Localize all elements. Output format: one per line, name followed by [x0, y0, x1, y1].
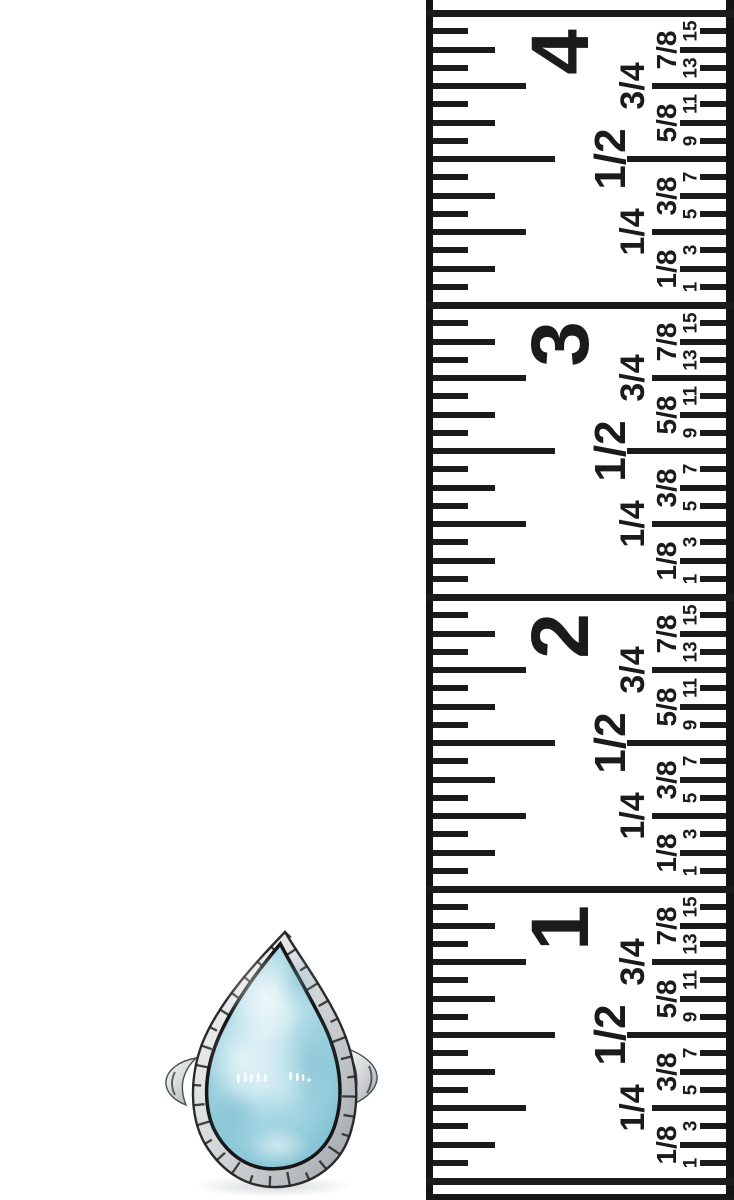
ruler-tick-left — [433, 193, 495, 199]
ruler-sixteenth-label: 11 — [682, 386, 701, 406]
ruler-sixteenth-label: 7 — [682, 756, 701, 767]
ruler-tick-left — [433, 466, 468, 472]
ruler-tick-right — [700, 941, 726, 947]
ruler-sixteenth-label: 5 — [682, 793, 701, 804]
ruler-tick-left — [433, 393, 468, 399]
ruler-inch-line — [426, 886, 734, 893]
ruler-tick-right — [700, 430, 726, 436]
ruler-tick-right — [680, 1142, 726, 1148]
ruler-tick-right — [700, 1050, 726, 1056]
ruler-eighth-label: 5/8 — [653, 396, 681, 435]
ruler-sixteenth-label: 15 — [682, 312, 701, 333]
ruler-tick-right — [680, 339, 726, 345]
ruler-tick-right — [700, 211, 726, 217]
ruler-sixteenth-label: 1 — [682, 282, 701, 293]
ruler-tick-left — [433, 375, 526, 381]
ruler-tick-right — [700, 1160, 726, 1166]
ruler-inch-numeral: 4 — [520, 31, 602, 75]
ruler-tick-left — [433, 211, 468, 217]
ruler-sixteenth-label: 15 — [682, 20, 701, 41]
ruler-tick-left — [433, 1105, 526, 1111]
ruler-quarter-label: 1/4 — [616, 500, 650, 547]
ruler-tick-left — [433, 777, 495, 783]
ruler-tick-right — [700, 174, 726, 180]
ruler-tick-right — [627, 448, 726, 454]
ruler-tick-right — [627, 1032, 726, 1038]
ruler-tick-left — [433, 339, 495, 345]
ruler-tick-left — [433, 649, 468, 655]
ruler-quarter-label: 3/4 — [616, 62, 650, 109]
ruler-inch-line — [426, 10, 734, 17]
ruler-inch-numeral: 3 — [520, 323, 602, 367]
ruler-sixteenth-label: 7 — [682, 464, 701, 475]
ruler-tick-right — [652, 959, 726, 965]
ruler-tick-left — [433, 631, 495, 637]
ruler-tick-left — [433, 977, 468, 983]
ruler-tick-right — [700, 576, 726, 582]
ruler-tick-left — [433, 558, 495, 564]
ruler-tick-left — [433, 904, 468, 910]
ruler-tick-left — [433, 685, 468, 691]
ruler-sixteenth-label: 13 — [682, 57, 701, 78]
ruler-tick-left — [433, 83, 526, 89]
ruler-tick-left — [433, 284, 468, 290]
ruler-tick-right — [700, 722, 726, 728]
ruler-tick-left — [433, 1069, 495, 1075]
ruler-quarter-label: 3/4 — [616, 646, 650, 693]
product-photo-stage: 411/831/453/871/295/8113/4137/815311/831… — [0, 0, 734, 1200]
ruler-tick-left — [433, 722, 468, 728]
ruler-eighth-label: 3/8 — [653, 1053, 681, 1092]
ruler-tick-left — [433, 1050, 468, 1056]
ruler-tick-right — [652, 813, 726, 819]
ruler-tick-right — [652, 229, 726, 235]
ruler-sixteenth-label: 11 — [682, 94, 701, 114]
ruler-tick-left — [433, 412, 495, 418]
ruler-inch-numeral: 1 — [520, 907, 602, 951]
ruler-tick-left — [433, 320, 468, 326]
ruler-quarter-label: 1/4 — [616, 792, 650, 839]
ruler-tick-right — [700, 101, 726, 107]
ruler-tick-right — [700, 539, 726, 545]
ruler-tick-right — [700, 977, 726, 983]
ruler-tick-left — [433, 795, 468, 801]
bezel-notch — [193, 1104, 205, 1105]
ruler-inch-line — [426, 594, 734, 601]
ruler-tick-right — [652, 667, 726, 673]
ruler-tick-left — [433, 357, 468, 363]
ruler-tick-left — [433, 430, 468, 436]
ruler-sixteenth-label: 5 — [682, 501, 701, 512]
ruler-eighth-label: 1/8 — [653, 1126, 681, 1165]
ruler-tick-left — [433, 704, 495, 710]
larimar-ring — [148, 910, 398, 1200]
ruler-tick-right — [680, 193, 726, 199]
ruler-eighth-label: 1/8 — [653, 834, 681, 873]
ruler-tick-left — [433, 813, 526, 819]
ruler-tick-right — [700, 868, 726, 874]
ruler-tick-left — [433, 1160, 468, 1166]
ruler-tick-left — [433, 521, 526, 527]
ruler-sixteenth-label: 7 — [682, 172, 701, 183]
ruler-eighth-label: 3/8 — [653, 761, 681, 800]
ruler-tick-right — [680, 850, 726, 856]
ruler-tick-right — [700, 758, 726, 764]
ruler-quarter-label: 1/4 — [616, 1084, 650, 1131]
ruler-tick-right — [680, 704, 726, 710]
ruler-tick-left — [433, 101, 468, 107]
ruler-eighth-label: 1/8 — [653, 250, 681, 289]
ruler-eighth-label: 5/8 — [653, 688, 681, 727]
ruler-tick-left — [433, 174, 468, 180]
ruler-tick-left — [433, 1087, 468, 1093]
ruler-half-label: 1/2 — [589, 1004, 633, 1065]
ruler-tick-right — [700, 28, 726, 34]
ruler-sixteenth-label: 1 — [682, 866, 701, 877]
ruler-tick-left — [433, 47, 495, 53]
ruler-inch-numeral: 2 — [520, 615, 602, 659]
ruler-tick-left — [433, 247, 468, 253]
ruler-sixteenth-label: 3 — [682, 537, 701, 548]
ruler-tick-right — [700, 284, 726, 290]
ruler-tick-left — [433, 485, 495, 491]
ruler-eighth-label: 7/8 — [653, 907, 681, 946]
ruler-sixteenth-label: 9 — [682, 136, 701, 147]
ruler-tick-right — [700, 1087, 726, 1093]
ruler-sixteenth-label: 3 — [682, 829, 701, 840]
ruler-eighth-label: 1/8 — [653, 542, 681, 581]
ruler-half-label: 1/2 — [589, 128, 633, 189]
ruler-tick-right — [700, 1014, 726, 1020]
ruler-tick-right — [700, 357, 726, 363]
ruler-half-label: 1/2 — [589, 420, 633, 481]
ruler-tick-left — [433, 120, 495, 126]
ruler-tick-right — [700, 1123, 726, 1129]
ruler-quarter-label: 3/4 — [616, 938, 650, 985]
ruler-sixteenth-label: 13 — [682, 933, 701, 954]
ruler-tick-right — [700, 795, 726, 801]
ruler-tick-right — [680, 777, 726, 783]
ruler-sixteenth-label: 11 — [682, 970, 701, 990]
ruler-tick-left — [433, 923, 495, 929]
ruler-sixteenth-label: 15 — [682, 896, 701, 917]
ruler-sixteenth-label: 13 — [682, 641, 701, 662]
ruler-eighth-label: 7/8 — [653, 31, 681, 70]
ruler-tick-right — [700, 649, 726, 655]
ruler-eighth-label: 7/8 — [653, 323, 681, 362]
ruler-eighth-label: 3/8 — [653, 469, 681, 508]
ruler-tick-right — [700, 393, 726, 399]
ruler-sixteenth-label: 15 — [682, 604, 701, 625]
ruler-tick-right — [700, 831, 726, 837]
ruler-tick-left — [433, 28, 468, 34]
ruler-tick-right — [627, 740, 726, 746]
ruler-tick-right — [700, 466, 726, 472]
ruler-eighth-label: 7/8 — [653, 615, 681, 654]
ruler-tick-right — [680, 485, 726, 491]
ruler-tick-right — [680, 47, 726, 53]
ruler-tick-right — [700, 685, 726, 691]
ruler-tick-right — [700, 904, 726, 910]
ruler-quarter-label: 3/4 — [616, 354, 650, 401]
ruler-tick-right — [700, 320, 726, 326]
ruler-inch-line — [426, 1178, 734, 1185]
ruler-tick-right — [680, 120, 726, 126]
ruler-tick-left — [433, 667, 526, 673]
ruler-tick-left — [433, 831, 468, 837]
ruler-tick-right — [680, 266, 726, 272]
ruler-bottom-edge — [426, 1194, 734, 1200]
ruler-sixteenth-label: 9 — [682, 1012, 701, 1023]
ruler-tick-left — [433, 1123, 468, 1129]
ruler-tick-right — [700, 247, 726, 253]
ruler-tick-right — [652, 83, 726, 89]
ruler-tick-left — [433, 868, 468, 874]
ruler-tick-right — [700, 138, 726, 144]
ruler-eighth-label: 5/8 — [653, 104, 681, 143]
ruler-tick-left — [433, 156, 555, 162]
ruler-tick-left — [433, 740, 555, 746]
ruler-tick-left — [433, 959, 526, 965]
ruler-tick-right — [700, 65, 726, 71]
ruler-tick-right — [652, 375, 726, 381]
ruler-tick-left — [433, 503, 468, 509]
ruler-tick-left — [433, 996, 495, 1002]
ruler-tick-left — [433, 266, 495, 272]
ruler-eighth-label: 3/8 — [653, 177, 681, 216]
bezel-notch — [192, 1085, 201, 1086]
ruler-sixteenth-label: 11 — [682, 678, 701, 698]
ruler-tick-left — [433, 138, 468, 144]
ruler-sixteenth-label: 3 — [682, 1121, 701, 1132]
ruler-tick-right — [627, 156, 726, 162]
ruler-tick-left — [433, 1032, 555, 1038]
ruler-tick-left — [433, 539, 468, 545]
ruler-sixteenth-label: 9 — [682, 428, 701, 439]
ruler-tick-right — [680, 1069, 726, 1075]
ruler-tick-right — [700, 503, 726, 509]
ruler-tick-right — [680, 412, 726, 418]
ruler-half-label: 1/2 — [589, 712, 633, 773]
ruler-tick-right — [680, 996, 726, 1002]
ruler-tick-left — [433, 850, 495, 856]
ring-band-left — [166, 1058, 196, 1105]
ruler-eighth-label: 5/8 — [653, 980, 681, 1019]
ruler-tick-left — [433, 65, 468, 71]
ruler-tick-right — [680, 631, 726, 637]
ruler-sixteenth-label: 7 — [682, 1048, 701, 1059]
ruler-tick-left — [433, 612, 468, 618]
ruler-sixteenth-label: 3 — [682, 245, 701, 256]
ruler-sixteenth-label: 5 — [682, 209, 701, 220]
bezel-notch — [270, 1176, 271, 1188]
bezel-notch — [347, 1076, 356, 1077]
ruler-inch-line — [426, 302, 734, 309]
ruler-sixteenth-label: 13 — [682, 349, 701, 370]
ruler-quarter-label: 1/4 — [616, 208, 650, 255]
ruler-tick-left — [433, 448, 555, 454]
ruler-tick-right — [652, 521, 726, 527]
ruler-tick-right — [652, 1105, 726, 1111]
ruler-sixteenth-label: 9 — [682, 720, 701, 731]
ruler-sixteenth-label: 5 — [682, 1085, 701, 1096]
ruler-sixteenth-label: 1 — [682, 1158, 701, 1169]
ruler-tick-right — [700, 612, 726, 618]
ruler-tick-left — [433, 229, 526, 235]
ruler-tick-left — [433, 1142, 495, 1148]
ruler-tick-right — [680, 923, 726, 929]
ruler-tick-right — [680, 558, 726, 564]
ruler-tick-left — [433, 576, 468, 582]
ruler-tick-left — [433, 1014, 468, 1020]
ruler-tick-left — [433, 758, 468, 764]
ruler-tick-left — [433, 941, 468, 947]
ruler-sixteenth-label: 1 — [682, 574, 701, 585]
